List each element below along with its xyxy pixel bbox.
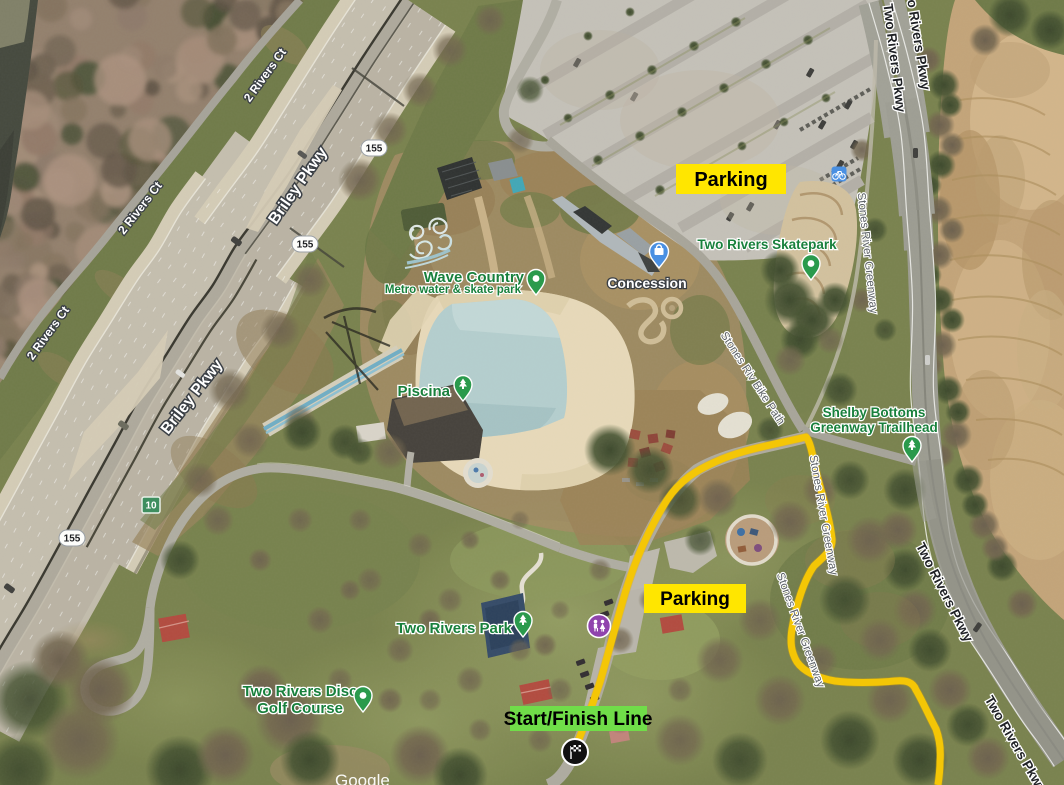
svg-text:Shelby Bottoms: Shelby Bottoms	[823, 405, 926, 420]
svg-text:Google: Google	[335, 771, 390, 785]
svg-text:Two Rivers Park: Two Rivers Park	[396, 620, 512, 637]
svg-text:Two Rivers Disc: Two Rivers Disc	[243, 683, 358, 700]
svg-text:10: 10	[145, 501, 157, 512]
svg-text:Two Rivers Skatepark: Two Rivers Skatepark	[697, 237, 837, 252]
svg-text:155: 155	[366, 144, 383, 155]
svg-text:155: 155	[297, 240, 314, 251]
svg-text:Greenway Trailhead: Greenway Trailhead	[810, 420, 938, 435]
svg-text:Parking: Parking	[694, 169, 767, 191]
svg-text:Parking: Parking	[660, 589, 730, 610]
svg-text:Piscina: Piscina	[397, 383, 450, 400]
svg-text:Golf Course: Golf Course	[257, 700, 343, 717]
svg-text:155: 155	[64, 534, 81, 545]
svg-text:Metro water & skate park: Metro water & skate park	[385, 284, 522, 296]
svg-text:Start/Finish Line: Start/Finish Line	[504, 709, 653, 730]
svg-text:Concession: Concession	[607, 275, 686, 291]
